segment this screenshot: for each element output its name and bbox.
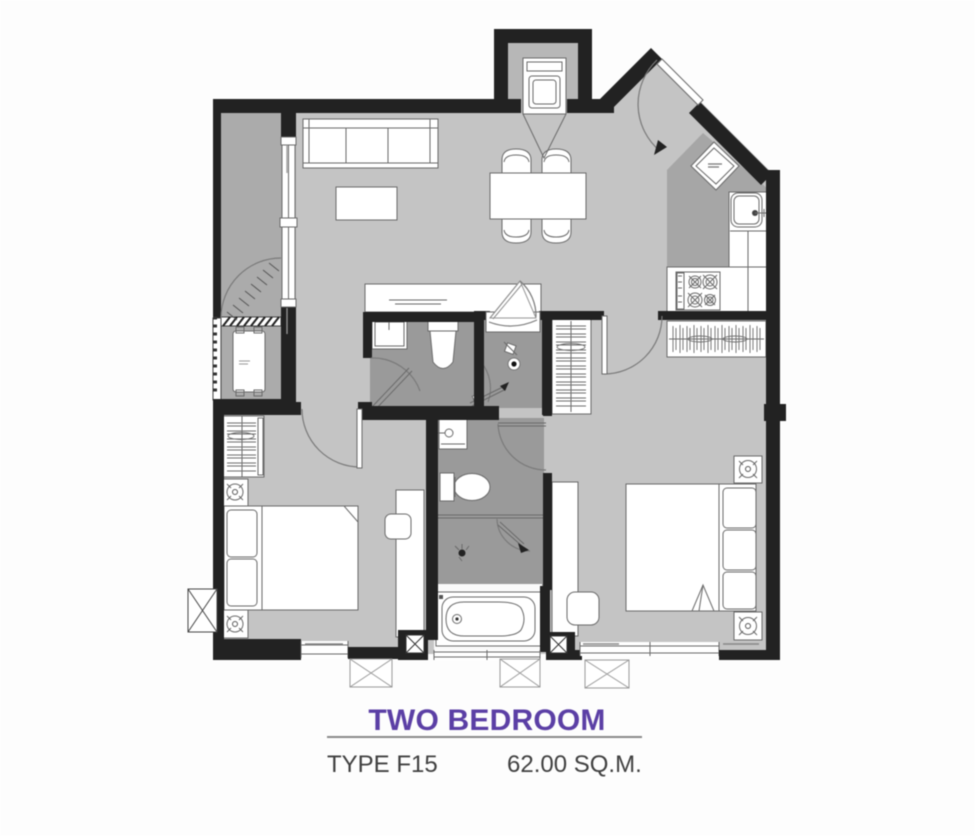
- svg-text:TYPE F15: TYPE F15: [327, 751, 438, 778]
- svg-text:TWO BEDROOM: TWO BEDROOM: [368, 704, 605, 737]
- svg-text:62.00 SQ.M.: 62.00 SQ.M.: [507, 751, 642, 778]
